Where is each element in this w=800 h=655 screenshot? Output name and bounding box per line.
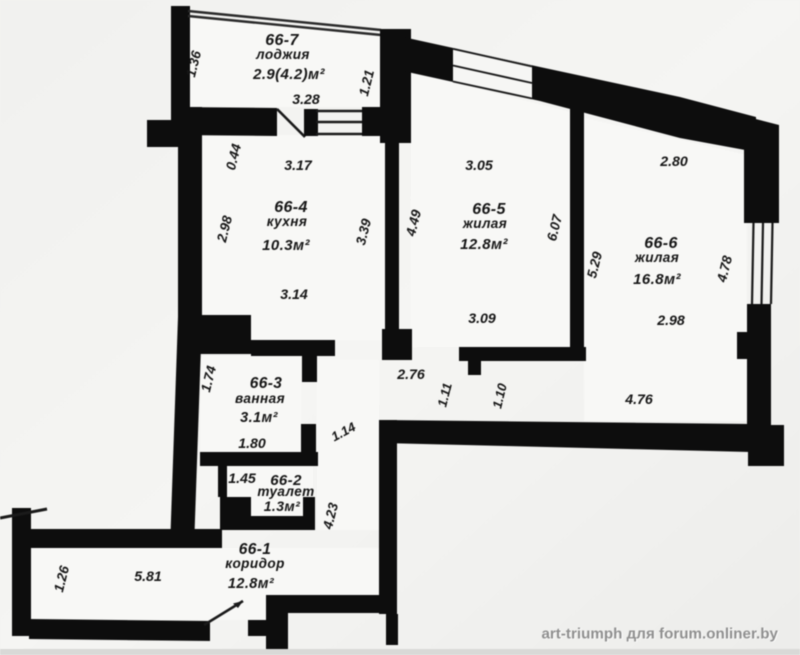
- svg-text:1.3м²: 1.3м²: [264, 498, 300, 514]
- svg-text:коридор: коридор: [225, 556, 285, 571]
- svg-text:ванная: ванная: [235, 391, 285, 406]
- svg-text:1.45: 1.45: [228, 471, 257, 487]
- svg-text:12.8м²: 12.8м²: [460, 236, 508, 253]
- svg-text:2.9(4.2)м²: 2.9(4.2)м²: [252, 66, 325, 83]
- svg-text:туалет: туалет: [257, 484, 314, 499]
- svg-text:3.17: 3.17: [284, 158, 313, 174]
- svg-text:3.05: 3.05: [465, 158, 494, 174]
- svg-text:16.8м²: 16.8м²: [633, 271, 681, 288]
- svg-text:2.76: 2.76: [396, 367, 425, 383]
- svg-text:5.81: 5.81: [134, 569, 162, 585]
- svg-text:2.98: 2.98: [656, 313, 685, 329]
- svg-text:12.8м²: 12.8м²: [228, 576, 275, 592]
- svg-text:3.1м²: 3.1м²: [240, 410, 278, 426]
- svg-text:66-3: 66-3: [250, 375, 283, 392]
- svg-text:3.14: 3.14: [280, 287, 308, 303]
- svg-text:жилая: жилая: [462, 216, 507, 231]
- svg-text:2.80: 2.80: [659, 154, 688, 170]
- svg-text:3.09: 3.09: [468, 311, 496, 327]
- svg-text:жилая: жилая: [634, 250, 679, 265]
- svg-text:лоджия: лоджия: [255, 47, 310, 62]
- svg-text:1.80: 1.80: [238, 436, 266, 452]
- svg-text:art-triumph для forum.onliner.: art-triumph для forum.onliner.by: [541, 625, 778, 642]
- svg-text:3.28: 3.28: [292, 92, 320, 108]
- svg-text:4.76: 4.76: [624, 392, 653, 408]
- svg-text:кухня: кухня: [267, 214, 308, 229]
- svg-text:10.3м²: 10.3м²: [262, 237, 310, 254]
